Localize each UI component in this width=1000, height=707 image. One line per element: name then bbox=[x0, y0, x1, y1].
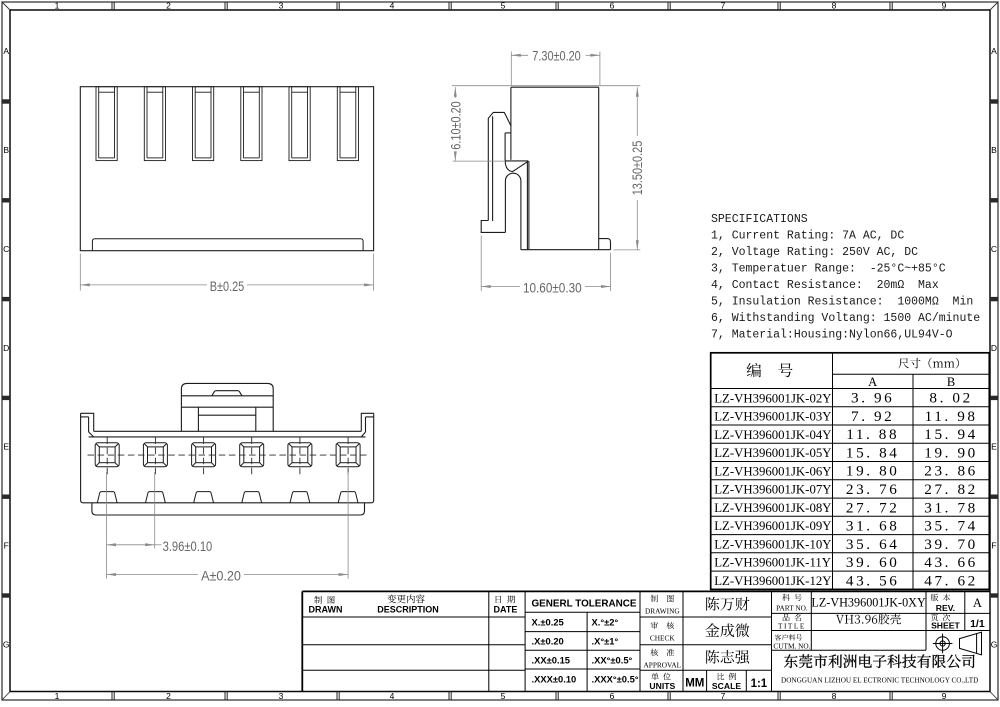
svg-text:7, Material:Housing:Nylon66,UL: 7, Material:Housing:Nylon66,UL94V-O bbox=[711, 329, 953, 342]
svg-text:A: A bbox=[3, 46, 9, 56]
svg-text:.XX±0.15: .XX±0.15 bbox=[532, 654, 571, 665]
svg-text:LZ-VH396001JK-04Y: LZ-VH396001JK-04Y bbox=[714, 428, 831, 442]
svg-text:9: 9 bbox=[942, 691, 947, 701]
svg-text:C: C bbox=[991, 244, 997, 254]
svg-text:39. 60: 39. 60 bbox=[846, 554, 900, 571]
svg-text:F: F bbox=[4, 541, 9, 551]
svg-text:27. 82: 27. 82 bbox=[924, 481, 978, 498]
svg-text:8: 8 bbox=[832, 1, 837, 11]
svg-text:LZ-VH396001JK-06Y: LZ-VH396001JK-06Y bbox=[714, 464, 831, 478]
svg-text:3, Temperatuer Range: -25°C~+: 3, Temperatuer Range: -25°C~+85°C bbox=[711, 263, 946, 276]
svg-text:11. 98: 11. 98 bbox=[925, 408, 978, 425]
svg-text:4: 4 bbox=[390, 1, 395, 11]
svg-text:10.60±0.30: 10.60±0.30 bbox=[523, 279, 582, 295]
svg-text:43. 66: 43. 66 bbox=[924, 554, 978, 571]
svg-text:DRAWN: DRAWN bbox=[309, 604, 343, 614]
svg-text:4, Contact Resistance: 20mΩ: 4, Contact Resistance: 20mΩ Max bbox=[711, 279, 939, 292]
svg-text:6, Withstanding Voltang: 1500: 6, Withstanding Voltang: 1500 AC/minute bbox=[711, 312, 980, 325]
svg-text:1: 1 bbox=[55, 1, 60, 11]
svg-text:13.50±0.25: 13.50±0.25 bbox=[630, 141, 646, 196]
svg-text:D: D bbox=[3, 343, 9, 353]
svg-text:19. 90: 19. 90 bbox=[924, 445, 978, 462]
svg-text:6.10±0.20: 6.10±0.20 bbox=[448, 101, 464, 149]
svg-text:.XXX°±0.5°: .XXX°±0.5° bbox=[592, 674, 639, 685]
svg-text:B: B bbox=[947, 375, 955, 389]
svg-text:9: 9 bbox=[942, 1, 947, 11]
svg-text:23. 76: 23. 76 bbox=[846, 481, 900, 498]
svg-text:G: G bbox=[3, 640, 10, 650]
svg-text:SHEET: SHEET bbox=[931, 621, 960, 631]
svg-text:LZ-VH396001JK-10Y: LZ-VH396001JK-10Y bbox=[714, 537, 831, 551]
svg-text:APPROVAL: APPROVAL bbox=[644, 660, 682, 669]
svg-text:5, Insulation Resistance: 100: 5, Insulation Resistance: 1000MΩ Min bbox=[711, 296, 973, 309]
svg-text:11. 88: 11. 88 bbox=[846, 426, 899, 443]
svg-text:6: 6 bbox=[610, 1, 615, 11]
svg-text:A±0.20: A±0.20 bbox=[201, 568, 241, 584]
svg-text:LZ-VH396001JK-02Y: LZ-VH396001JK-02Y bbox=[714, 391, 831, 405]
svg-text:C: C bbox=[3, 244, 9, 254]
svg-text:31. 68: 31. 68 bbox=[846, 518, 900, 535]
svg-text:DONGGUAN LIZHOU EL ECTRONIC TE: DONGGUAN LIZHOU EL ECTRONIC TECHNOLOGY C… bbox=[781, 677, 978, 685]
svg-text:GENERL TOLERANCE: GENERL TOLERANCE bbox=[532, 598, 637, 609]
svg-text:A: A bbox=[991, 46, 997, 56]
svg-text:E: E bbox=[3, 442, 9, 452]
svg-text:X.°±2°: X.°±2° bbox=[592, 616, 619, 627]
svg-text:8: 8 bbox=[832, 691, 837, 701]
svg-text:UNITS: UNITS bbox=[649, 681, 675, 691]
svg-text:3. 96: 3. 96 bbox=[851, 390, 894, 407]
svg-text:27. 72: 27. 72 bbox=[846, 499, 900, 516]
svg-text:LZ-VH396001JK-07Y: LZ-VH396001JK-07Y bbox=[714, 483, 831, 497]
svg-text:23. 86: 23. 86 bbox=[924, 463, 978, 480]
svg-text:1:1: 1:1 bbox=[751, 678, 768, 690]
svg-text:7: 7 bbox=[721, 1, 726, 11]
svg-text:5: 5 bbox=[501, 1, 506, 11]
svg-text:LZ-VH396001JK-11Y: LZ-VH396001JK-11Y bbox=[714, 556, 831, 570]
svg-text:SPECIFICATIONS: SPECIFICATIONS bbox=[711, 213, 808, 226]
svg-text:2, Voltage Rating: 250V AC, DC: 2, Voltage Rating: 250V AC, DC bbox=[711, 246, 918, 259]
svg-text:LZ-VH396001JK-03Y: LZ-VH396001JK-03Y bbox=[714, 410, 831, 424]
svg-text:19. 80: 19. 80 bbox=[846, 463, 900, 480]
svg-text:2: 2 bbox=[166, 1, 171, 11]
svg-text:47. 62: 47. 62 bbox=[924, 572, 978, 589]
svg-text:G: G bbox=[991, 640, 998, 650]
svg-text:SCALE: SCALE bbox=[712, 681, 741, 691]
svg-text:X.±0.25: X.±0.25 bbox=[532, 616, 564, 627]
svg-text:31. 78: 31. 78 bbox=[924, 499, 978, 516]
svg-text:.X±0.20: .X±0.20 bbox=[532, 635, 564, 646]
svg-text:LZ-VH396001JK-05Y: LZ-VH396001JK-05Y bbox=[714, 446, 831, 460]
svg-text:1: 1 bbox=[55, 691, 60, 701]
svg-text:DESCRIPTION: DESCRIPTION bbox=[377, 604, 439, 614]
svg-text:3.96±0.10: 3.96±0.10 bbox=[163, 539, 213, 554]
svg-text:A: A bbox=[973, 596, 982, 610]
svg-text:3: 3 bbox=[279, 691, 284, 701]
svg-text:2: 2 bbox=[166, 691, 171, 701]
svg-text:4: 4 bbox=[390, 691, 395, 701]
svg-text:43. 56: 43. 56 bbox=[846, 572, 900, 589]
svg-text:15. 94: 15. 94 bbox=[924, 426, 978, 443]
svg-text:A: A bbox=[868, 375, 877, 389]
svg-text:F: F bbox=[991, 541, 996, 551]
svg-text:3: 3 bbox=[279, 1, 284, 11]
svg-text:TITLE: TITLE bbox=[778, 621, 806, 630]
svg-text:B: B bbox=[3, 145, 9, 155]
svg-text:.X°±1°: .X°±1° bbox=[592, 635, 619, 646]
svg-text:5: 5 bbox=[501, 691, 506, 701]
svg-text:15. 84: 15. 84 bbox=[846, 445, 900, 462]
svg-text:LZ-VH396001JK-0XY: LZ-VH396001JK-0XY bbox=[811, 596, 926, 610]
svg-text:39. 70: 39. 70 bbox=[924, 536, 978, 553]
svg-text:35. 64: 35. 64 bbox=[846, 536, 900, 553]
svg-text:1, Current Rating: 7A AC, DC: 1, Current Rating: 7A AC, DC bbox=[711, 230, 904, 243]
svg-text:LZ-VH396001JK-12Y: LZ-VH396001JK-12Y bbox=[714, 574, 831, 588]
svg-text:.XXX±0.10: .XXX±0.10 bbox=[532, 674, 577, 685]
svg-text:LZ-VH396001JK-09Y: LZ-VH396001JK-09Y bbox=[714, 519, 831, 533]
svg-text:8. 02: 8. 02 bbox=[929, 390, 972, 407]
svg-text:DATE: DATE bbox=[494, 604, 518, 614]
svg-text:LZ-VH396001JK-08Y: LZ-VH396001JK-08Y bbox=[714, 501, 831, 515]
svg-text:REV.: REV. bbox=[936, 603, 955, 613]
svg-text:7.30±0.20: 7.30±0.20 bbox=[532, 48, 580, 64]
svg-text:CHECK: CHECK bbox=[650, 634, 675, 643]
svg-text:DRAWING: DRAWING bbox=[645, 607, 680, 616]
svg-text:B: B bbox=[991, 145, 997, 155]
svg-text:7. 92: 7. 92 bbox=[851, 408, 894, 425]
svg-text:E: E bbox=[991, 442, 997, 452]
svg-text:7: 7 bbox=[721, 691, 726, 701]
svg-text:D: D bbox=[991, 343, 997, 353]
svg-text:6: 6 bbox=[610, 691, 615, 701]
svg-text:MM: MM bbox=[685, 678, 704, 690]
svg-text:.XX°±0.5°: .XX°±0.5° bbox=[592, 654, 633, 665]
svg-text:35. 74: 35. 74 bbox=[924, 518, 978, 535]
svg-text:PART NO.: PART NO. bbox=[776, 604, 808, 613]
svg-text:1/1: 1/1 bbox=[970, 618, 985, 630]
svg-text:CUTM. NO.: CUTM. NO. bbox=[773, 641, 810, 650]
svg-text:B±0.25: B±0.25 bbox=[210, 279, 245, 295]
